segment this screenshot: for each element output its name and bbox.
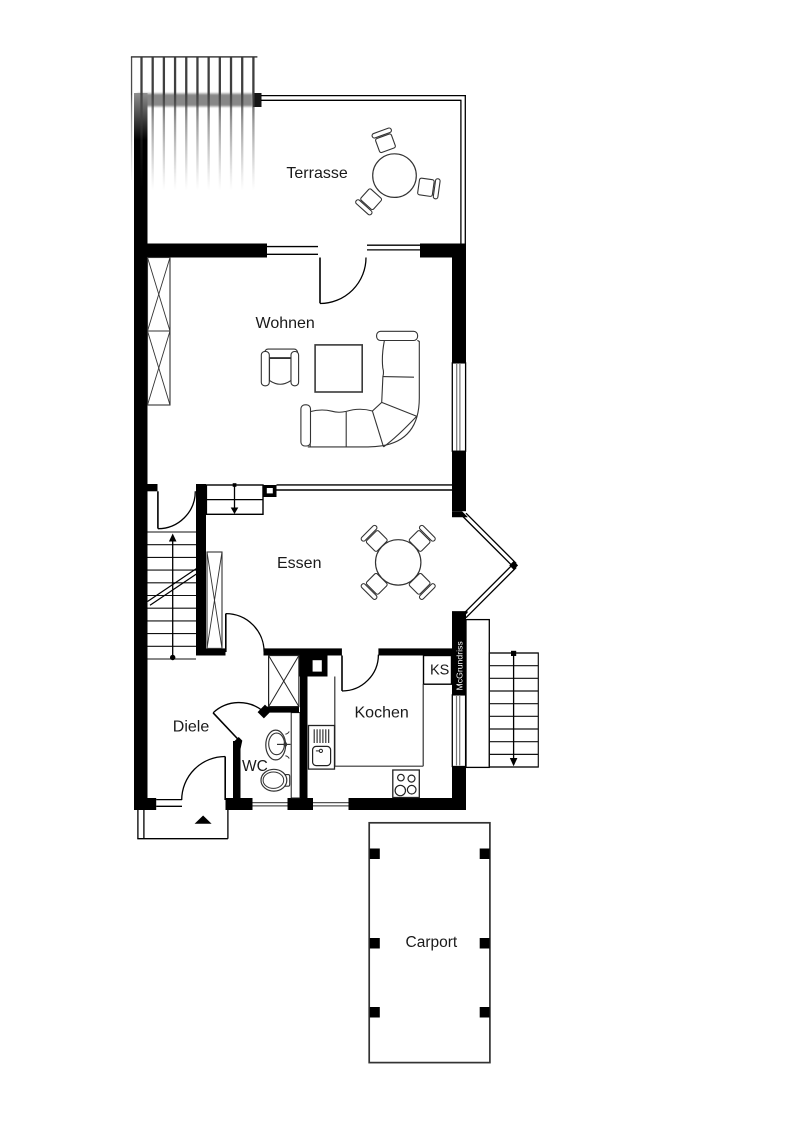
svg-text:Diele: Diele bbox=[173, 719, 210, 736]
svg-text:WC: WC bbox=[242, 758, 268, 775]
svg-text:Wohnen: Wohnen bbox=[256, 315, 315, 332]
svg-text:KS: KS bbox=[430, 663, 449, 679]
svg-text:Carport: Carport bbox=[406, 934, 458, 951]
svg-text:Essen: Essen bbox=[277, 555, 321, 572]
svg-text:Terrasse: Terrasse bbox=[286, 165, 347, 182]
svg-text:McGrundriss: McGrundriss bbox=[455, 641, 465, 691]
svg-text:Kochen: Kochen bbox=[355, 705, 409, 722]
